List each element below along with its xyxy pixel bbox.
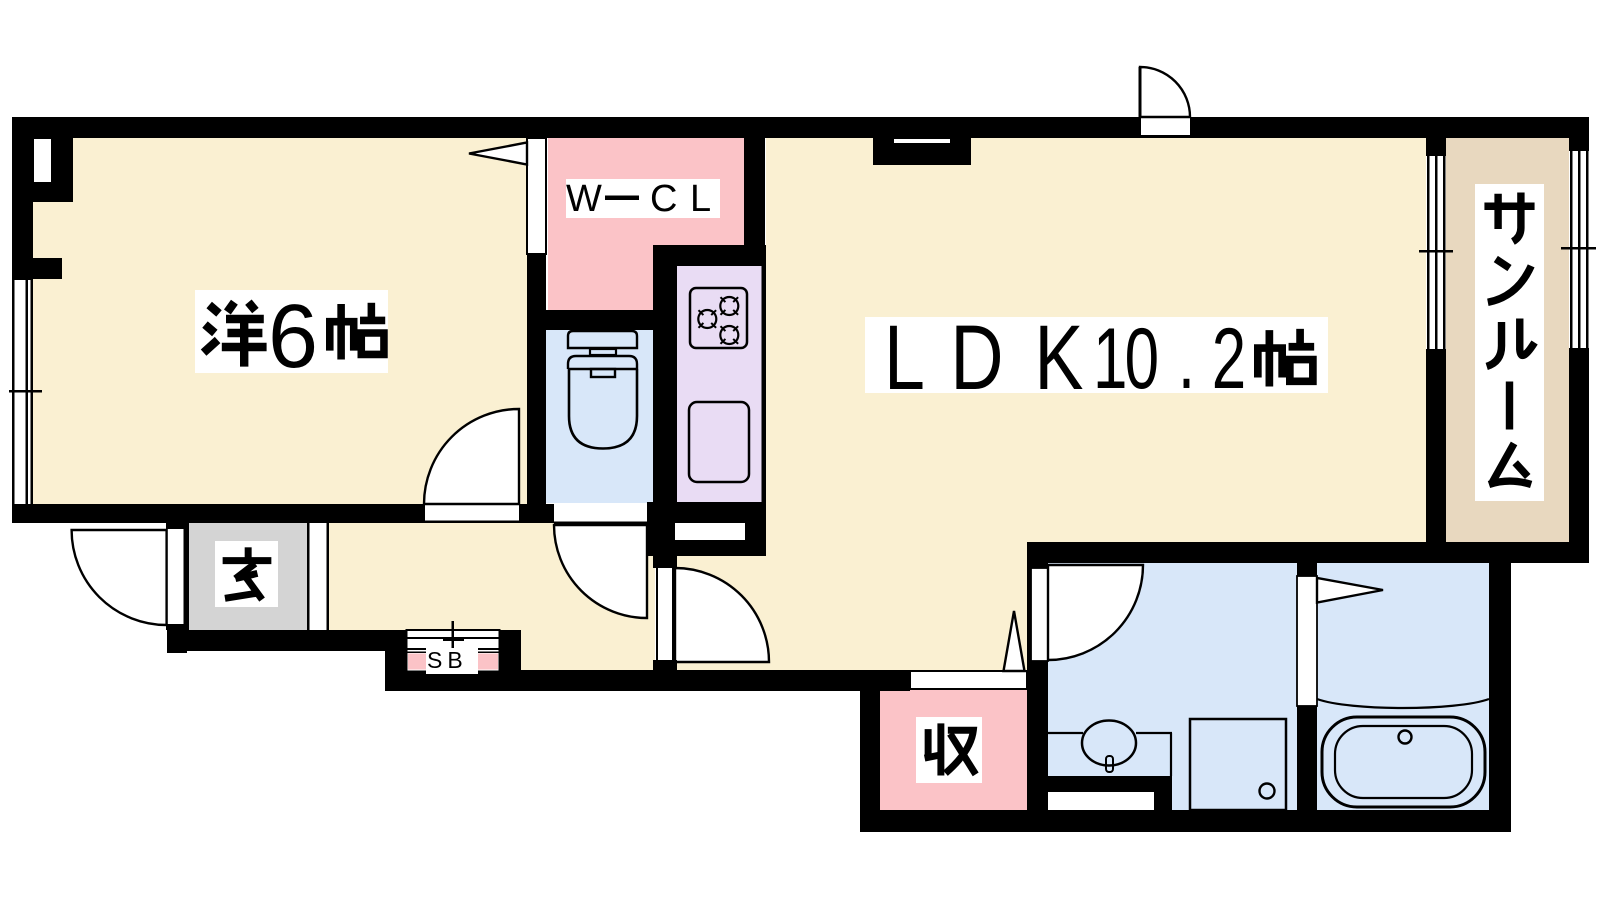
svg-text:SB: SB: [427, 647, 468, 673]
svg-text:W: W: [566, 178, 602, 220]
svg-text:LDK: LDK: [884, 306, 1083, 409]
svg-text:6: 6: [268, 287, 318, 387]
